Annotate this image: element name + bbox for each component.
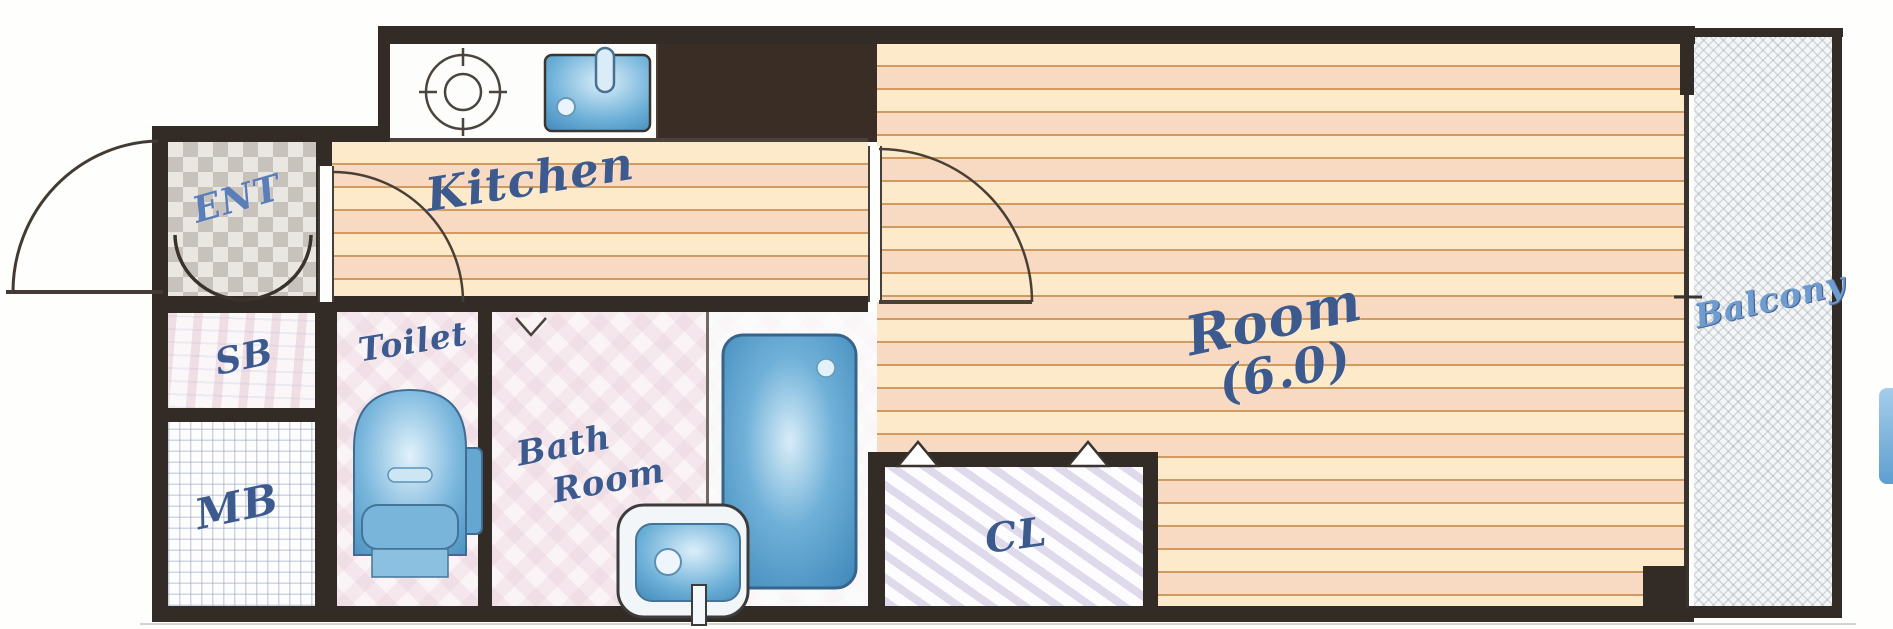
room-cl-label: CL: [982, 508, 1050, 563]
wall: [868, 452, 1158, 467]
wall: [152, 606, 1694, 622]
wall: [1643, 566, 1686, 608]
entrance-door-swing-arc: [6, 141, 163, 292]
wall: [1832, 28, 1842, 618]
kitchen-counter: [388, 42, 658, 142]
ent-kitchen-doorway: [318, 166, 334, 302]
wall: [868, 452, 885, 606]
wall: [1143, 467, 1158, 606]
wall: [1680, 38, 1694, 95]
wall: [378, 26, 390, 142]
wall: [152, 126, 390, 142]
wall: [152, 408, 316, 422]
bath-partition-line: [706, 312, 709, 606]
wall: [378, 26, 1695, 44]
wall: [315, 296, 868, 312]
pipe-shaft: [656, 44, 877, 142]
wall: [478, 312, 492, 608]
room-ent-floor: [168, 142, 318, 298]
kitchen-room-doorway: [868, 146, 882, 302]
wall: [1694, 606, 1842, 618]
wall: [152, 296, 337, 313]
wall: [152, 126, 168, 622]
window-line: [1684, 95, 1689, 608]
wall: [315, 296, 337, 608]
scan-shadow-line: [140, 623, 1856, 625]
wall: [1688, 28, 1843, 37]
scan-blue-smudge: [1879, 388, 1893, 484]
floor-plan: ENT Kitchen SB MB Toilet Bath Room CL Ro…: [0, 0, 1893, 629]
bathtub-area: [709, 312, 877, 606]
